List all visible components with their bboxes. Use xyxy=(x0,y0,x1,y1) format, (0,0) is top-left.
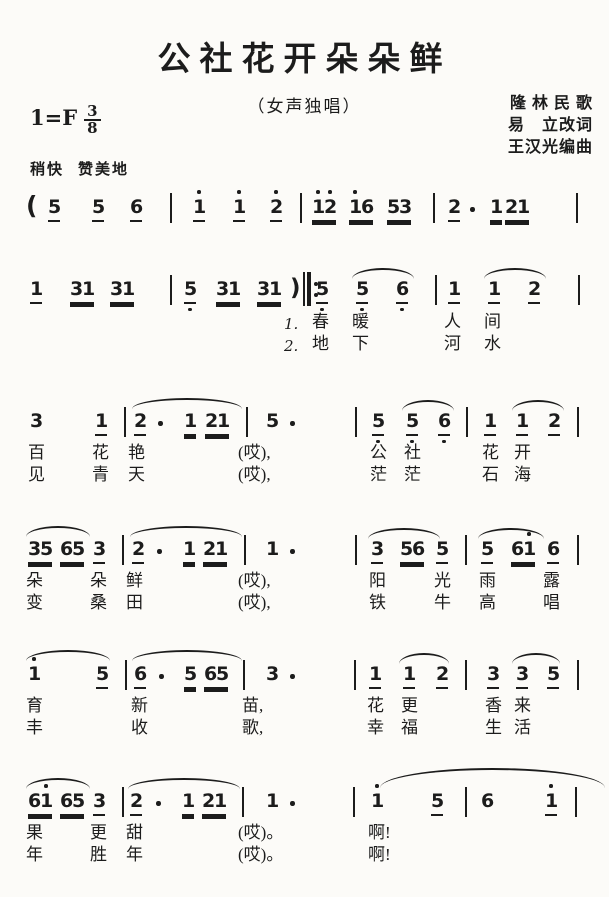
digit: 5 xyxy=(387,196,399,218)
note-digits: 3 xyxy=(266,663,278,687)
note: 2 xyxy=(134,410,146,436)
note-digits: 1 xyxy=(183,538,195,564)
lyric: 年 xyxy=(126,845,143,865)
note: 6 xyxy=(130,196,142,222)
note: 31 xyxy=(70,278,94,304)
octave-dot-high xyxy=(274,190,278,194)
lyric: 青 xyxy=(92,465,109,485)
note: 1 xyxy=(28,663,40,687)
lyric: 地 xyxy=(312,334,329,354)
note-digits: 6 xyxy=(438,410,450,436)
slur xyxy=(26,526,90,537)
note: 21 xyxy=(203,538,227,564)
note: 2 xyxy=(548,410,560,436)
digit: 3 xyxy=(371,538,383,560)
octave-dot-low xyxy=(320,308,324,312)
verse-number: 2. xyxy=(284,336,298,356)
digit: 5 xyxy=(72,538,84,560)
lyric: 海 xyxy=(514,465,531,485)
note: 5 xyxy=(406,410,418,436)
digit: 1 xyxy=(269,278,281,300)
note-digits: 12 xyxy=(312,196,336,222)
lyric: 苗, xyxy=(242,696,263,716)
note: 5 xyxy=(184,278,196,304)
note-digits: 2 xyxy=(134,410,146,436)
barline xyxy=(243,660,245,690)
augmentation-dot xyxy=(156,801,161,806)
digit: 3 xyxy=(28,538,40,560)
digit: 5 xyxy=(266,410,278,432)
lyric: 花 xyxy=(482,443,499,463)
augmentation-dot xyxy=(157,549,162,554)
barline xyxy=(433,193,435,223)
lyric: 间 xyxy=(484,312,501,332)
note: 1 xyxy=(193,196,205,222)
digit: 1 xyxy=(228,278,240,300)
lyric: 花 xyxy=(367,696,384,716)
barline xyxy=(300,193,302,223)
augmentation-dot xyxy=(159,674,164,679)
lyric: 香 xyxy=(485,696,502,716)
note: 21 xyxy=(505,196,529,222)
digit: 5 xyxy=(40,538,52,560)
digit: 3 xyxy=(516,663,528,685)
note: 1 xyxy=(484,410,496,436)
octave-dot-high xyxy=(316,190,320,194)
barline xyxy=(242,787,244,817)
note-digits: 1 xyxy=(95,410,107,436)
note: 5 xyxy=(266,410,278,434)
digit: 1 xyxy=(183,538,195,560)
note: 1 xyxy=(182,790,194,816)
note: 5 xyxy=(316,278,328,304)
lyric: 光 xyxy=(434,571,451,591)
slur xyxy=(368,528,440,539)
digit: 5 xyxy=(216,663,228,685)
note: 3 xyxy=(93,538,105,564)
lyric: (哎), xyxy=(238,593,271,613)
barline xyxy=(124,407,126,437)
digit: 2 xyxy=(202,790,214,812)
note-digits: 5 xyxy=(266,410,278,434)
note-digits: 5 xyxy=(316,278,328,304)
barline xyxy=(170,193,172,223)
note: 3 xyxy=(371,538,383,564)
digit: 3 xyxy=(110,278,122,300)
note-digits: 5 xyxy=(184,278,196,304)
note-digits: 1 xyxy=(488,278,500,304)
note-digits: 3 xyxy=(30,410,42,434)
lyric: (哎), xyxy=(238,571,271,591)
digit: 2 xyxy=(270,196,282,218)
digit: 5 xyxy=(431,790,443,812)
note-digits: 31 xyxy=(70,278,94,304)
lyric: 桑 xyxy=(90,593,107,613)
note: 31 xyxy=(216,278,240,304)
note-digits: 56 xyxy=(400,538,424,564)
digit: 1 xyxy=(448,278,460,300)
note-digits: 1 xyxy=(28,663,40,687)
note-digits: 3 xyxy=(371,538,383,564)
slur xyxy=(484,268,546,279)
repeat-sign: ) xyxy=(290,272,318,306)
note: 21 xyxy=(202,790,226,816)
lyric: 丰 xyxy=(26,718,43,738)
digit: 2 xyxy=(205,410,217,432)
note-digits: 1 xyxy=(448,278,460,304)
note: 6 xyxy=(134,663,146,689)
barline xyxy=(246,407,248,437)
digit: 3 xyxy=(266,663,278,685)
repeat-barline-thin xyxy=(303,272,305,306)
augmentation-dot xyxy=(290,801,295,806)
note: 2 xyxy=(436,663,448,689)
barline xyxy=(577,535,579,565)
digit: 6 xyxy=(511,538,523,560)
lyric: 阳 xyxy=(369,571,386,591)
note: 1 xyxy=(30,278,42,304)
sheet-music-page: 公社花开朵朵鲜 （女声独唱） 隆 林 民 歌 易 立改词 王汉光编曲 1=F38… xyxy=(0,0,609,897)
barline xyxy=(122,535,124,565)
lyric: 开 xyxy=(514,443,531,463)
note-digits: 2 xyxy=(548,410,560,436)
note: 61 xyxy=(511,538,535,564)
digit: 6 xyxy=(60,538,72,560)
lyric: 高 xyxy=(479,593,496,613)
note: 2 xyxy=(132,538,144,564)
digit: 1 xyxy=(122,278,134,300)
note: 1 xyxy=(448,278,460,304)
digit: 1 xyxy=(217,410,229,432)
lyric: 天 xyxy=(128,465,145,485)
note-digits: 1 xyxy=(516,410,528,436)
digit: 2 xyxy=(448,196,460,218)
slur xyxy=(402,400,454,411)
note-digits: 1 xyxy=(266,538,278,562)
note: 65 xyxy=(60,790,84,816)
digit: 5 xyxy=(92,196,104,218)
note-digits: 5 xyxy=(406,410,418,436)
lyric: 人 xyxy=(444,312,461,332)
lyric: 幸 xyxy=(367,718,384,738)
lyric: 朵 xyxy=(90,571,107,591)
lyric: (哎)。 xyxy=(238,823,283,843)
note-digits: 53 xyxy=(387,196,411,222)
lyric: 春 xyxy=(312,312,329,332)
lyric: 来 xyxy=(514,696,531,716)
barline xyxy=(244,535,246,565)
digit: 1 xyxy=(523,538,535,560)
lyric: 朵 xyxy=(26,571,43,591)
note: 65 xyxy=(204,663,228,689)
note-digits: 1 xyxy=(484,410,496,436)
note-digits: 6 xyxy=(481,790,493,814)
lyric: 果 xyxy=(26,823,43,843)
note-digits: 21 xyxy=(505,196,529,222)
digit: 3 xyxy=(70,278,82,300)
note: 5 xyxy=(96,663,108,689)
note-digits: 3 xyxy=(93,538,105,564)
digit: 5 xyxy=(481,538,493,560)
note: 6 xyxy=(396,278,408,304)
digit: 1 xyxy=(266,538,278,560)
digit: 3 xyxy=(399,196,411,218)
digit: 2 xyxy=(203,538,215,560)
barline xyxy=(122,787,124,817)
barline xyxy=(465,660,467,690)
note-digits: 6 xyxy=(134,663,146,689)
digit: 1 xyxy=(516,410,528,432)
barline xyxy=(353,787,355,817)
digit: 2 xyxy=(436,663,448,685)
barline xyxy=(577,407,579,437)
digit: 3 xyxy=(93,790,105,812)
note: 3 xyxy=(266,663,278,687)
slur xyxy=(128,778,240,789)
barline xyxy=(170,275,172,305)
lyric: 年 xyxy=(26,845,43,865)
digit: 6 xyxy=(361,196,373,218)
digit: 6 xyxy=(204,663,216,685)
note: 31 xyxy=(110,278,134,304)
note-digits: 5 xyxy=(356,278,368,304)
note-digits: 31 xyxy=(110,278,134,304)
lyric: 新 xyxy=(131,696,148,716)
note: 65 xyxy=(60,538,84,564)
note-digits: 3 xyxy=(487,663,499,689)
lyric: 啊! xyxy=(368,845,391,865)
digit: 1 xyxy=(488,278,500,300)
slur xyxy=(380,768,605,788)
digit: 1 xyxy=(484,410,496,432)
lyric: (哎), xyxy=(238,465,271,485)
barline xyxy=(354,660,356,690)
slur xyxy=(132,650,242,661)
note: 2 xyxy=(528,278,540,304)
lyric: 下 xyxy=(352,334,369,354)
digit: 5 xyxy=(436,538,448,560)
octave-dot-low xyxy=(188,308,192,312)
note-digits: 21 xyxy=(205,410,229,436)
note: 2 xyxy=(270,196,282,222)
note-digits: 3 xyxy=(93,790,105,816)
digit: 5 xyxy=(184,278,196,300)
note-digits: 65 xyxy=(60,538,84,564)
note: 2 xyxy=(130,790,142,816)
barline xyxy=(575,787,577,817)
note-digits: 6 xyxy=(547,538,559,564)
barline xyxy=(465,535,467,565)
lyric: 雨 xyxy=(479,571,496,591)
note: 1 xyxy=(369,663,381,689)
note-digits: 2 xyxy=(528,278,540,304)
note: 6 xyxy=(481,790,493,814)
note: 1 xyxy=(183,538,195,564)
note: 1 xyxy=(403,663,415,689)
lyric: 更 xyxy=(90,823,107,843)
digit: 6 xyxy=(412,538,424,560)
lyric: 生 xyxy=(485,718,502,738)
augmentation-dot xyxy=(290,674,295,679)
note-digits: 16 xyxy=(349,196,373,222)
note-digits: 31 xyxy=(216,278,240,304)
lyric: 百 xyxy=(28,443,45,463)
digit: 2 xyxy=(130,790,142,812)
note-digits: 5 xyxy=(547,663,559,689)
digit: 1 xyxy=(349,196,361,218)
slur xyxy=(130,526,242,537)
digit: 6 xyxy=(60,790,72,812)
note-digits: 5 xyxy=(48,196,60,222)
digit: 1 xyxy=(184,410,196,432)
octave-dot-high xyxy=(353,190,357,194)
barline xyxy=(466,407,468,437)
slur xyxy=(132,398,242,409)
note: 6 xyxy=(438,410,450,436)
note-digits: 21 xyxy=(203,538,227,564)
digit: 2 xyxy=(132,538,144,560)
lyric: 活 xyxy=(514,718,531,738)
note: 1 xyxy=(184,410,196,436)
note: 5 xyxy=(547,663,559,689)
lyric: 艳 xyxy=(128,443,145,463)
note: 5 xyxy=(184,663,196,689)
digit: 5 xyxy=(184,663,196,685)
barline xyxy=(577,660,579,690)
note-digits: 1 xyxy=(369,663,381,689)
note: 5 xyxy=(372,410,384,436)
note-digits: 2 xyxy=(270,196,282,222)
note: 1 xyxy=(545,790,557,816)
barline xyxy=(465,787,467,817)
slur xyxy=(512,653,560,664)
barline xyxy=(355,407,357,437)
lyric: 更 xyxy=(401,696,418,716)
digit: 1 xyxy=(403,663,415,685)
octave-dot-high xyxy=(375,784,379,788)
lyric: (哎), xyxy=(238,443,271,463)
slur xyxy=(512,400,564,411)
note: 1 xyxy=(233,196,245,222)
digit: 1 xyxy=(82,278,94,300)
digit: 5 xyxy=(72,790,84,812)
note: 16 xyxy=(349,196,373,222)
note: 53 xyxy=(387,196,411,222)
barline xyxy=(578,275,580,305)
note-digits: 2 xyxy=(132,538,144,564)
digit: 6 xyxy=(438,410,450,432)
note-digits: 1 xyxy=(193,196,205,222)
note-digits: 5 xyxy=(372,410,384,436)
note-digits: 65 xyxy=(204,663,228,689)
digit: 2 xyxy=(548,410,560,432)
barline xyxy=(125,660,127,690)
note-digits: 6 xyxy=(130,196,142,222)
digit: 2 xyxy=(134,410,146,432)
barline xyxy=(576,193,578,223)
verse-number: 1. xyxy=(284,314,298,334)
octave-dot-low xyxy=(360,308,364,312)
octave-dot-low xyxy=(442,440,446,444)
note: 1 xyxy=(488,278,500,304)
note: 35 xyxy=(28,538,52,564)
octave-dot-high xyxy=(328,190,332,194)
note: 31 xyxy=(257,278,281,304)
phrase-paren: ( xyxy=(26,191,37,221)
note: 61 xyxy=(28,790,52,816)
note-digits: 1 xyxy=(545,790,557,816)
digit: 1 xyxy=(193,196,205,218)
note: 5 xyxy=(481,538,493,564)
digit: 1 xyxy=(95,410,107,432)
digit: 1 xyxy=(266,790,278,812)
lyric: 公 xyxy=(370,443,387,463)
score: (55611212165321211313153131)5561121.春暖人间… xyxy=(0,0,609,897)
note-digits: 1 xyxy=(233,196,245,222)
lyric: 河 xyxy=(444,334,461,354)
digit: 6 xyxy=(547,538,559,560)
digit: 5 xyxy=(96,663,108,685)
note: 56 xyxy=(400,538,424,564)
digit: 1 xyxy=(28,663,40,685)
note-digits: 1 xyxy=(182,790,194,816)
slur xyxy=(399,653,449,664)
lyric: 福 xyxy=(401,718,418,738)
note: 3 xyxy=(93,790,105,816)
digit: 1 xyxy=(214,790,226,812)
lyric: 变 xyxy=(26,593,43,613)
lyric: 水 xyxy=(484,334,501,354)
digit: 6 xyxy=(396,278,408,300)
note: 1 xyxy=(371,790,383,814)
slur xyxy=(478,528,544,539)
augmentation-dot xyxy=(290,421,295,426)
note: 5 xyxy=(431,790,443,816)
lyric: 茫 xyxy=(404,465,421,485)
lyric: 露 xyxy=(543,571,560,591)
octave-dot-low xyxy=(400,308,404,312)
digit: 2 xyxy=(505,196,517,218)
note: 1 xyxy=(95,410,107,436)
lyric: 暖 xyxy=(352,312,369,332)
note-digits: 1 xyxy=(30,278,42,304)
digit: 6 xyxy=(28,790,40,812)
note-digits: 2 xyxy=(448,196,460,222)
digit: 2 xyxy=(324,196,336,218)
note: 6 xyxy=(547,538,559,564)
lyric: 铁 xyxy=(369,593,386,613)
digit: 3 xyxy=(487,663,499,685)
note-digits: 5 xyxy=(92,196,104,222)
lyric: 收 xyxy=(131,718,148,738)
note: 5 xyxy=(48,196,60,222)
digit: 5 xyxy=(547,663,559,685)
note-digits: 21 xyxy=(202,790,226,816)
digit: 6 xyxy=(130,196,142,218)
digit: 2 xyxy=(528,278,540,300)
note-digits: 3 xyxy=(516,663,528,689)
note-digits: 2 xyxy=(436,663,448,689)
note: 5 xyxy=(92,196,104,222)
lyric: 见 xyxy=(28,465,45,485)
note: 21 xyxy=(205,410,229,436)
slur xyxy=(352,268,414,279)
lyric: (哎)。 xyxy=(238,845,283,865)
digit: 1 xyxy=(517,196,529,218)
note-digits: 61 xyxy=(511,538,535,564)
digit: 5 xyxy=(400,538,412,560)
digit: 6 xyxy=(134,663,146,685)
